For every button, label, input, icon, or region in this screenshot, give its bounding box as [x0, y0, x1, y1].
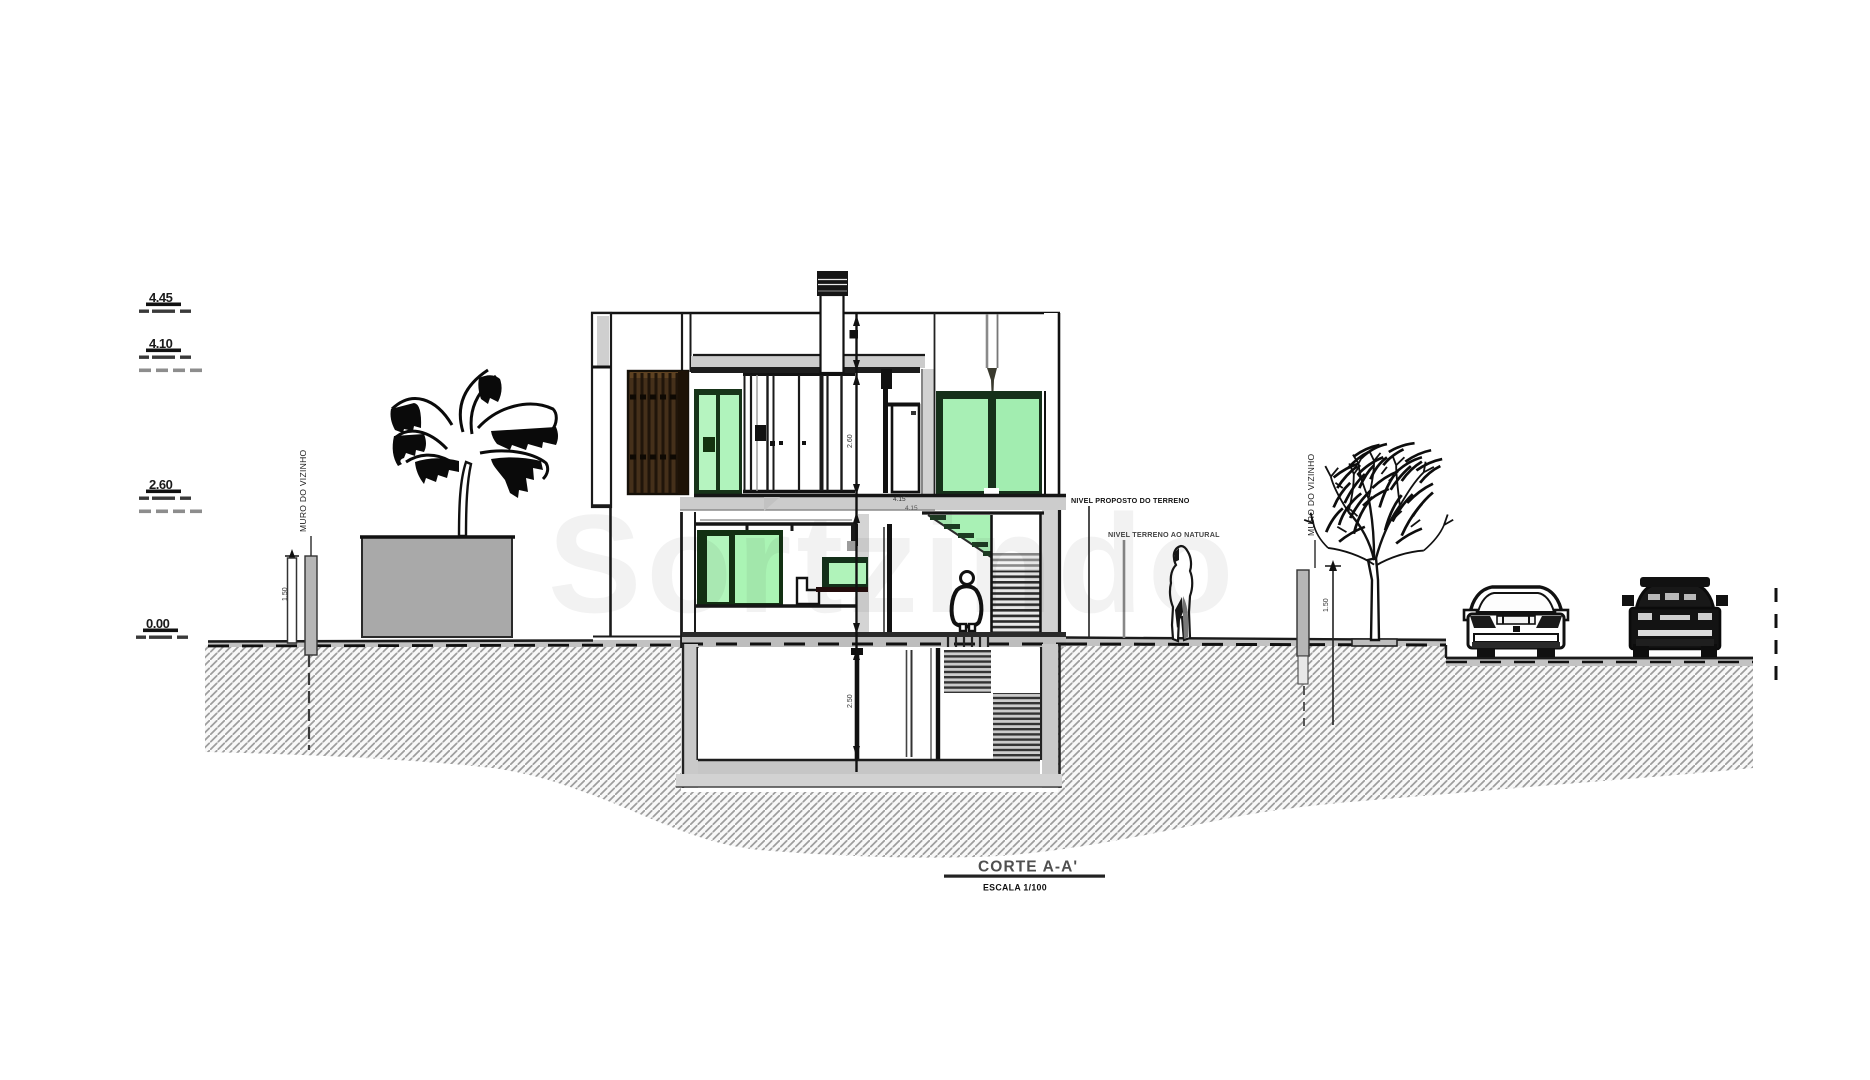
- svg-text:2.50: 2.50: [847, 694, 854, 708]
- svg-text:Sortzindo: Sortzindo: [548, 485, 1238, 642]
- svg-text:2.60: 2.60: [847, 434, 854, 448]
- svg-text:1.50: 1.50: [1323, 598, 1330, 612]
- svg-text:MURO DO VIZINHO: MURO DO VIZINHO: [298, 449, 308, 532]
- svg-text:CORTE A-A': CORTE A-A': [978, 859, 1078, 876]
- svg-text:ESCALA 1/100: ESCALA 1/100: [983, 883, 1047, 893]
- svg-text:MURO DO VIZINHO: MURO DO VIZINHO: [1306, 453, 1316, 536]
